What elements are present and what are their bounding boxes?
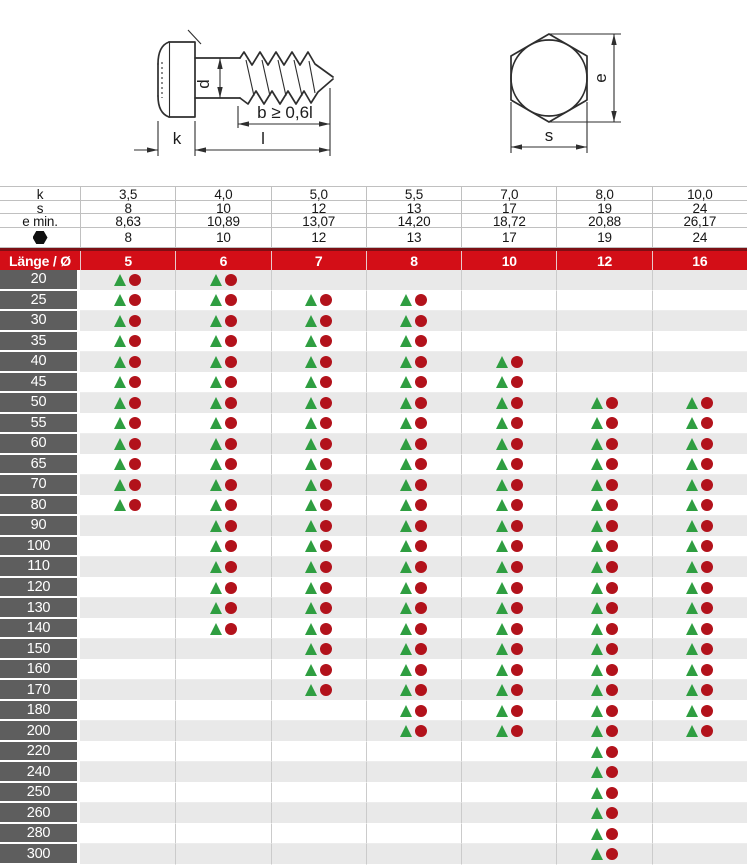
- circle-marker-icon: [129, 458, 141, 470]
- table-row: 180: [0, 701, 747, 722]
- length-cell: 35: [0, 332, 80, 353]
- availability-cell: [461, 598, 556, 619]
- availability-table-body: 2025303540455055606570809010011012013014…: [0, 270, 747, 865]
- triangle-marker-icon: [591, 766, 603, 778]
- availability-markers: [496, 582, 523, 594]
- spec-value-cell: 8: [80, 228, 175, 247]
- availability-cell: [461, 578, 556, 599]
- availability-cell: [461, 660, 556, 681]
- availability-cell: [461, 455, 556, 476]
- dim-label-e: e: [591, 73, 610, 82]
- availability-markers: [496, 397, 523, 409]
- availability-cell: [271, 803, 366, 824]
- availability-cell: [366, 578, 461, 599]
- circle-marker-icon: [511, 417, 523, 429]
- availability-cell: [271, 537, 366, 558]
- spec-value-cell: 3,5: [80, 187, 175, 202]
- triangle-marker-icon: [210, 356, 222, 368]
- availability-markers: [305, 643, 332, 655]
- circle-marker-icon: [415, 499, 427, 511]
- availability-markers: [305, 458, 332, 470]
- triangle-marker-icon: [686, 643, 698, 655]
- availability-cell: [652, 475, 747, 496]
- availability-cell: [271, 352, 366, 373]
- triangle-marker-icon: [305, 499, 317, 511]
- triangle-marker-icon: [496, 397, 508, 409]
- availability-markers: [305, 684, 332, 696]
- spec-value-cell: 4,0: [175, 187, 270, 202]
- availability-cell: [652, 824, 747, 845]
- table-row: 300: [0, 844, 747, 865]
- availability-cell: [461, 783, 556, 804]
- availability-markers: [591, 664, 618, 676]
- availability-markers: [591, 417, 618, 429]
- availability-markers: [210, 274, 237, 286]
- availability-cell: [80, 332, 175, 353]
- availability-cell: [271, 578, 366, 599]
- dim-label-b: b ≥ 0,6l: [257, 103, 313, 122]
- triangle-marker-icon: [305, 458, 317, 470]
- availability-cell: [271, 844, 366, 865]
- availability-cell: [652, 783, 747, 804]
- availability-cell: [80, 598, 175, 619]
- availability-cell: [461, 270, 556, 291]
- availability-cell: [80, 783, 175, 804]
- circle-marker-icon: [225, 397, 237, 409]
- circle-marker-icon: [511, 376, 523, 388]
- availability-cell: [271, 619, 366, 640]
- availability-cell: [80, 516, 175, 537]
- availability-markers: [210, 499, 237, 511]
- circle-marker-icon: [320, 643, 332, 655]
- circle-marker-icon: [225, 294, 237, 306]
- availability-cell: [461, 680, 556, 701]
- availability-cell: [366, 434, 461, 455]
- triangle-marker-icon: [114, 499, 126, 511]
- triangle-marker-icon: [591, 438, 603, 450]
- triangle-marker-icon: [305, 684, 317, 696]
- availability-cell: [461, 311, 556, 332]
- circle-marker-icon: [701, 684, 713, 696]
- circle-marker-icon: [225, 479, 237, 491]
- triangle-marker-icon: [686, 623, 698, 635]
- availability-markers: [591, 746, 618, 758]
- circle-marker-icon: [606, 499, 618, 511]
- availability-cell: [175, 680, 270, 701]
- length-cell: 45: [0, 373, 80, 394]
- availability-markers: [305, 335, 332, 347]
- availability-cell: [80, 496, 175, 517]
- circle-marker-icon: [511, 684, 523, 696]
- availability-cell: [461, 496, 556, 517]
- triangle-marker-icon: [686, 684, 698, 696]
- availability-cell: [80, 742, 175, 763]
- spec-value-cell: 10,89: [175, 214, 270, 229]
- availability-markers: [210, 623, 237, 635]
- circle-marker-icon: [225, 602, 237, 614]
- triangle-marker-icon: [686, 417, 698, 429]
- spec-value-cell: 19: [556, 228, 651, 247]
- triangle-marker-icon: [496, 479, 508, 491]
- triangle-marker-icon: [305, 397, 317, 409]
- availability-markers: [400, 643, 427, 655]
- circle-marker-icon: [415, 520, 427, 532]
- availability-cell: [461, 414, 556, 435]
- table-row: 280: [0, 824, 747, 845]
- table-row: 120: [0, 578, 747, 599]
- triangle-marker-icon: [210, 582, 222, 594]
- availability-cell: [366, 721, 461, 742]
- availability-cell: [461, 824, 556, 845]
- availability-cell: [556, 496, 651, 517]
- length-cell: 260: [0, 803, 80, 824]
- availability-markers: [400, 725, 427, 737]
- availability-markers: [210, 335, 237, 347]
- availability-markers: [686, 643, 713, 655]
- availability-markers: [496, 643, 523, 655]
- circle-marker-icon: [511, 520, 523, 532]
- availability-markers: [591, 397, 618, 409]
- length-cell: 80: [0, 496, 80, 517]
- table-row: 70: [0, 475, 747, 496]
- circle-marker-icon: [415, 643, 427, 655]
- availability-cell: [652, 639, 747, 660]
- availability-markers: [114, 315, 141, 327]
- table-row: 170: [0, 680, 747, 701]
- availability-markers: [210, 479, 237, 491]
- circle-marker-icon: [129, 499, 141, 511]
- spec-value-cell: 14,20: [366, 214, 461, 229]
- length-cell: 65: [0, 455, 80, 476]
- circle-marker-icon: [415, 356, 427, 368]
- circle-marker-icon: [606, 540, 618, 552]
- length-cell: 60: [0, 434, 80, 455]
- triangle-marker-icon: [210, 520, 222, 532]
- triangle-marker-icon: [210, 458, 222, 470]
- availability-markers: [591, 807, 618, 819]
- circle-marker-icon: [225, 623, 237, 635]
- triangle-marker-icon: [591, 623, 603, 635]
- circle-marker-icon: [606, 561, 618, 573]
- triangle-marker-icon: [496, 684, 508, 696]
- availability-markers: [210, 397, 237, 409]
- availability-cell: [80, 803, 175, 824]
- triangle-marker-icon: [686, 438, 698, 450]
- availability-markers: [686, 561, 713, 573]
- availability-markers: [400, 602, 427, 614]
- triangle-marker-icon: [591, 848, 603, 860]
- length-cell: 50: [0, 393, 80, 414]
- circle-marker-icon: [606, 623, 618, 635]
- triangle-marker-icon: [400, 643, 412, 655]
- availability-markers: [496, 684, 523, 696]
- availability-cell: [556, 455, 651, 476]
- availability-cell: [652, 762, 747, 783]
- circle-marker-icon: [511, 602, 523, 614]
- availability-cell: [461, 537, 556, 558]
- circle-marker-icon: [415, 582, 427, 594]
- triangle-marker-icon: [400, 417, 412, 429]
- circle-marker-icon: [320, 684, 332, 696]
- spec-row-e-min: e min.8,6310,8913,0714,2018,7220,8826,17: [0, 214, 747, 228]
- availability-cell: [461, 639, 556, 660]
- circle-marker-icon: [606, 807, 618, 819]
- circle-marker-icon: [415, 561, 427, 573]
- triangle-marker-icon: [686, 499, 698, 511]
- circle-marker-icon: [511, 643, 523, 655]
- availability-markers: [400, 376, 427, 388]
- triangle-marker-icon: [686, 561, 698, 573]
- triangle-marker-icon: [591, 417, 603, 429]
- circle-marker-icon: [701, 705, 713, 717]
- availability-cell: [80, 434, 175, 455]
- availability-markers: [591, 540, 618, 552]
- availability-cell: [556, 537, 651, 558]
- availability-cell: [175, 660, 270, 681]
- circle-marker-icon: [701, 623, 713, 635]
- table-row: 20: [0, 270, 747, 291]
- availability-markers: [305, 602, 332, 614]
- circle-marker-icon: [701, 397, 713, 409]
- circle-marker-icon: [415, 397, 427, 409]
- availability-markers: [114, 438, 141, 450]
- circle-marker-icon: [701, 643, 713, 655]
- availability-markers: [496, 479, 523, 491]
- availability-markers: [686, 705, 713, 717]
- circle-marker-icon: [606, 725, 618, 737]
- availability-cell: [175, 270, 270, 291]
- triangle-marker-icon: [591, 602, 603, 614]
- length-cell: 100: [0, 537, 80, 558]
- triangle-marker-icon: [114, 315, 126, 327]
- circle-marker-icon: [701, 438, 713, 450]
- availability-markers: [114, 294, 141, 306]
- triangle-marker-icon: [591, 582, 603, 594]
- circle-marker-icon: [701, 479, 713, 491]
- triangle-marker-icon: [400, 458, 412, 470]
- triangle-marker-icon: [591, 499, 603, 511]
- availability-cell: [80, 680, 175, 701]
- availability-cell: [366, 270, 461, 291]
- triangle-marker-icon: [496, 499, 508, 511]
- circle-marker-icon: [606, 397, 618, 409]
- availability-cell: [461, 742, 556, 763]
- spec-label-cell: e min.: [0, 214, 80, 229]
- availability-markers: [686, 397, 713, 409]
- availability-cell: [175, 578, 270, 599]
- availability-cell: [366, 742, 461, 763]
- triangle-marker-icon: [400, 540, 412, 552]
- availability-cell: [366, 373, 461, 394]
- length-cell: 200: [0, 721, 80, 742]
- availability-cell: [271, 475, 366, 496]
- length-cell: 130: [0, 598, 80, 619]
- availability-cell: [366, 783, 461, 804]
- availability-cell: [461, 557, 556, 578]
- triangle-marker-icon: [400, 664, 412, 676]
- triangle-marker-icon: [496, 643, 508, 655]
- availability-markers: [210, 582, 237, 594]
- availability-markers: [210, 540, 237, 552]
- triangle-marker-icon: [114, 397, 126, 409]
- availability-markers: [305, 376, 332, 388]
- length-cell: 220: [0, 742, 80, 763]
- availability-markers: [591, 479, 618, 491]
- availability-markers: [305, 479, 332, 491]
- availability-markers: [591, 582, 618, 594]
- triangle-marker-icon: [591, 458, 603, 470]
- availability-cell: [175, 721, 270, 742]
- availability-cell: [80, 557, 175, 578]
- availability-markers: [400, 458, 427, 470]
- availability-cell: [80, 578, 175, 599]
- circle-marker-icon: [320, 356, 332, 368]
- triangle-marker-icon: [400, 315, 412, 327]
- dim-label-k: k: [173, 129, 182, 148]
- availability-markers: [305, 315, 332, 327]
- triangle-marker-icon: [400, 602, 412, 614]
- circle-marker-icon: [415, 725, 427, 737]
- availability-markers: [305, 561, 332, 573]
- availability-markers: [591, 766, 618, 778]
- circle-marker-icon: [225, 520, 237, 532]
- triangle-marker-icon: [305, 294, 317, 306]
- circle-marker-icon: [511, 458, 523, 470]
- availability-cell: [461, 373, 556, 394]
- availability-cell: [556, 311, 651, 332]
- triangle-marker-icon: [210, 376, 222, 388]
- circle-marker-icon: [606, 520, 618, 532]
- triangle-marker-icon: [305, 561, 317, 573]
- availability-cell: [556, 660, 651, 681]
- triangle-marker-icon: [114, 294, 126, 306]
- availability-markers: [496, 561, 523, 573]
- availability-markers: [400, 520, 427, 532]
- availability-cell: [652, 496, 747, 517]
- triangle-marker-icon: [496, 705, 508, 717]
- availability-cell: [556, 844, 651, 865]
- diameter-cell: 12: [556, 251, 651, 270]
- availability-cell: [556, 414, 651, 435]
- spec-value-cell: 8,63: [80, 214, 175, 229]
- availability-markers: [591, 438, 618, 450]
- triangle-marker-icon: [114, 417, 126, 429]
- table-row: 25: [0, 291, 747, 312]
- availability-cell: [652, 393, 747, 414]
- triangle-marker-icon: [400, 479, 412, 491]
- circle-marker-icon: [511, 664, 523, 676]
- spec-value-cell: 12: [271, 228, 366, 247]
- table-row: 45: [0, 373, 747, 394]
- triangle-marker-icon: [305, 643, 317, 655]
- length-cell: 280: [0, 824, 80, 845]
- availability-cell: [461, 291, 556, 312]
- spec-value-cell: 8,0: [556, 187, 651, 202]
- spec-value-cell: 13: [366, 228, 461, 247]
- circle-marker-icon: [225, 540, 237, 552]
- availability-markers: [496, 499, 523, 511]
- circle-marker-icon: [606, 787, 618, 799]
- availability-cell: [271, 639, 366, 660]
- triangle-marker-icon: [305, 356, 317, 368]
- availability-cell: [175, 619, 270, 640]
- circle-marker-icon: [511, 397, 523, 409]
- availability-markers: [305, 397, 332, 409]
- availability-cell: [175, 557, 270, 578]
- triangle-marker-icon: [210, 274, 222, 286]
- circle-marker-icon: [511, 499, 523, 511]
- triangle-marker-icon: [305, 520, 317, 532]
- availability-markers: [686, 458, 713, 470]
- availability-markers: [400, 499, 427, 511]
- spec-value-cell: 17: [461, 228, 556, 247]
- availability-cell: [556, 352, 651, 373]
- triangle-marker-icon: [210, 479, 222, 491]
- triangle-marker-icon: [496, 458, 508, 470]
- availability-cell: [271, 496, 366, 517]
- triangle-marker-icon: [686, 705, 698, 717]
- circle-marker-icon: [129, 479, 141, 491]
- triangle-marker-icon: [686, 520, 698, 532]
- availability-cell: [652, 537, 747, 558]
- availability-markers: [686, 479, 713, 491]
- availability-cell: [271, 598, 366, 619]
- availability-markers: [686, 725, 713, 737]
- availability-cell: [175, 844, 270, 865]
- availability-markers: [591, 520, 618, 532]
- diameter-cell: 5: [80, 251, 175, 270]
- triangle-marker-icon: [305, 315, 317, 327]
- length-cell: 240: [0, 762, 80, 783]
- triangle-marker-icon: [591, 684, 603, 696]
- availability-cell: [556, 557, 651, 578]
- circle-marker-icon: [701, 458, 713, 470]
- availability-cell: [80, 660, 175, 681]
- availability-markers: [591, 499, 618, 511]
- availability-markers: [305, 520, 332, 532]
- circle-marker-icon: [129, 417, 141, 429]
- triangle-marker-icon: [591, 828, 603, 840]
- availability-markers: [305, 417, 332, 429]
- spec-value-cell: 26,17: [652, 214, 747, 229]
- availability-cell: [80, 311, 175, 332]
- diameter-cell: 7: [271, 251, 366, 270]
- availability-cell: [271, 721, 366, 742]
- triangle-marker-icon: [210, 294, 222, 306]
- circle-marker-icon: [225, 499, 237, 511]
- availability-cell: [366, 332, 461, 353]
- dim-label-d: d: [194, 79, 213, 88]
- triangle-marker-icon: [496, 725, 508, 737]
- spec-value-cell: 20,88: [556, 214, 651, 229]
- table-row: 35: [0, 332, 747, 353]
- availability-cell: [366, 393, 461, 414]
- availability-cell: [652, 270, 747, 291]
- availability-markers: [591, 561, 618, 573]
- triangle-marker-icon: [591, 787, 603, 799]
- availability-cell: [652, 352, 747, 373]
- availability-markers: [591, 684, 618, 696]
- availability-markers: [496, 356, 523, 368]
- spec-value-cell: 10: [175, 228, 270, 247]
- availability-cell: [366, 660, 461, 681]
- circle-marker-icon: [415, 705, 427, 717]
- spec-value-cell: 13,07: [271, 214, 366, 229]
- availability-cell: [366, 455, 461, 476]
- availability-cell: [271, 742, 366, 763]
- availability-cell: [271, 393, 366, 414]
- availability-cell: [366, 762, 461, 783]
